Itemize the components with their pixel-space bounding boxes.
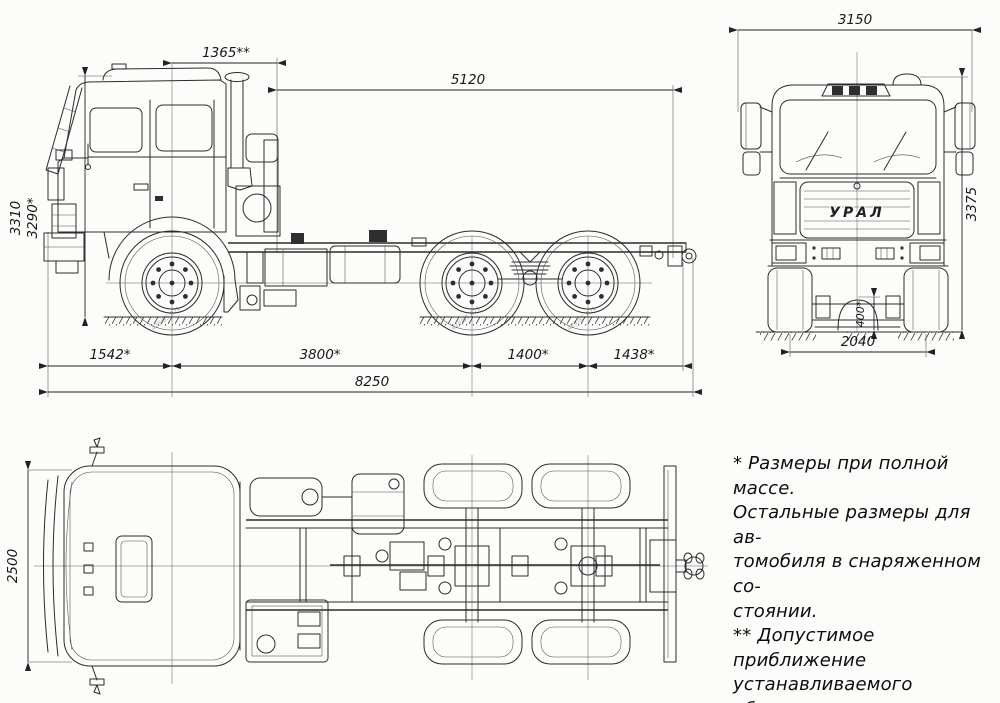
dim-wheelbase-label: 3800* bbox=[299, 347, 340, 363]
cab-front: УРАЛ bbox=[741, 74, 975, 266]
fuel-tank-top bbox=[352, 474, 404, 534]
rear-side-window bbox=[156, 105, 212, 151]
door-window bbox=[90, 108, 142, 152]
door-handle bbox=[134, 184, 148, 190]
cab-side bbox=[44, 64, 238, 312]
roof-beacon bbox=[893, 74, 921, 85]
dim-overall-length-label: 8250 bbox=[355, 374, 389, 390]
dim-front-height-label: 3375 bbox=[964, 187, 980, 221]
left-mirror bbox=[741, 103, 772, 175]
exhaust-and-air-cleaner bbox=[225, 73, 280, 237]
air-tank-top bbox=[250, 478, 322, 516]
dim-front-overhang-label: 1542* bbox=[89, 347, 130, 363]
dim-cab-to-frame-end-label: 5120 bbox=[451, 72, 485, 88]
top-view: 2500 bbox=[5, 438, 708, 694]
chassis-top bbox=[246, 464, 704, 664]
chassis-frame-side bbox=[228, 230, 696, 310]
dim-track-label: 2040 bbox=[841, 334, 875, 350]
truck-dimension-drawing: 425/85 R21 bbox=[0, 0, 1000, 703]
dim-overall-height-label: 3310 bbox=[8, 201, 24, 235]
dim-height-laden-label: 3290* bbox=[25, 197, 41, 238]
dim-cab-width-label: 2500 bbox=[5, 549, 21, 583]
dim-rear-overhang-label: 1438* bbox=[613, 347, 654, 363]
windshield bbox=[780, 100, 936, 174]
dim-bogie-base-label: 1400* bbox=[507, 347, 548, 363]
rear-crossmember bbox=[664, 466, 676, 662]
front-view: УРАЛ bbox=[738, 12, 980, 357]
footnotes: * Размеры при полной массе. Остальные ра… bbox=[733, 452, 1000, 703]
dim-ground-clearance-label: 400* bbox=[854, 300, 867, 327]
roof-hatch bbox=[116, 536, 152, 602]
grille-logo: УРАЛ bbox=[829, 205, 885, 221]
side-view: 1365** 5120 3310 3290* 1542* 3800* 1400*… bbox=[8, 45, 696, 397]
dim-overall-width-label: 3150 bbox=[838, 12, 872, 28]
dim-equip-clearance-label: 1365** bbox=[202, 45, 250, 61]
right-mirror bbox=[944, 103, 975, 175]
battery-box bbox=[265, 249, 327, 286]
